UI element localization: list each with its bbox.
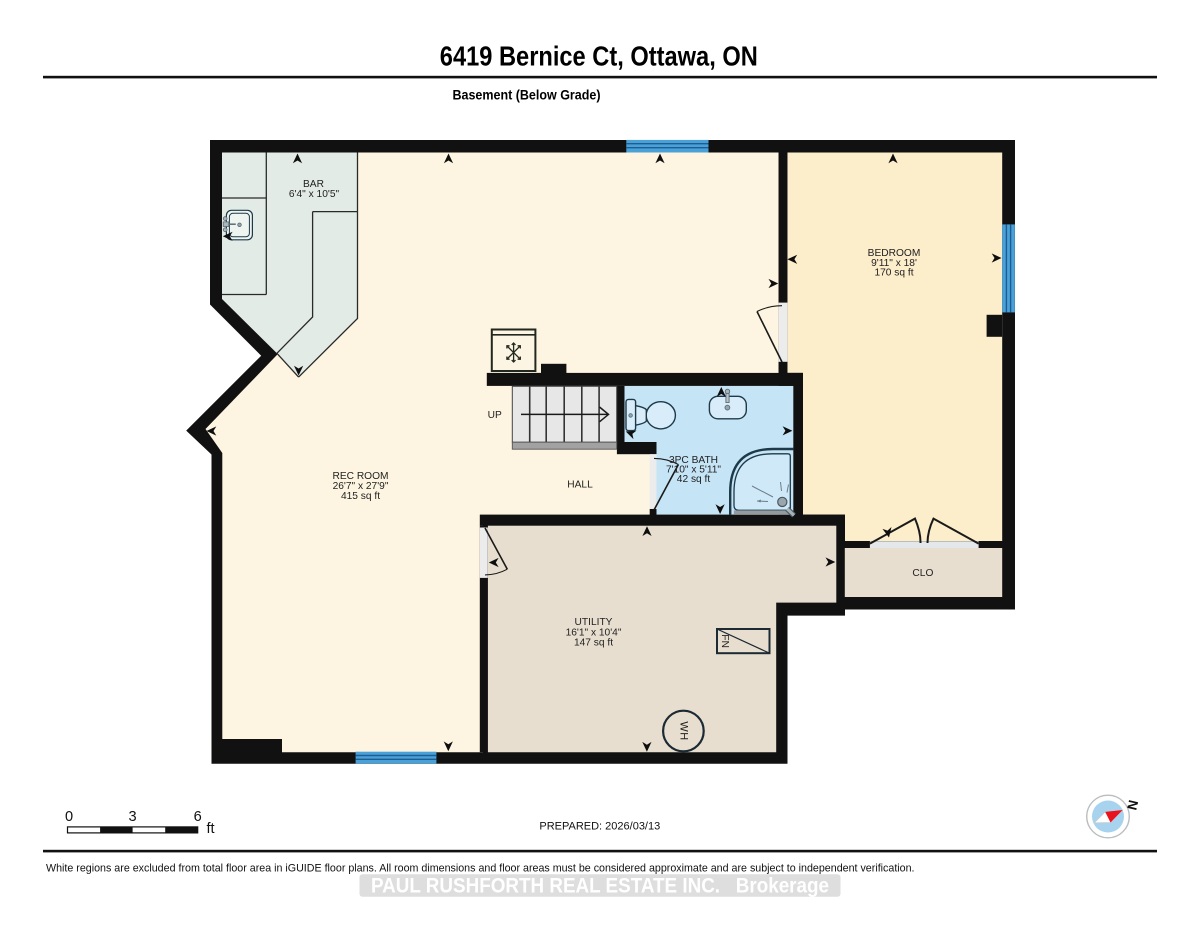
svg-text:UP: UP	[488, 410, 502, 421]
svg-text:FN: FN	[719, 634, 730, 648]
svg-text:PREPARED: 2026/03/13: PREPARED: 2026/03/13	[539, 821, 660, 833]
svg-text:170 sq ft: 170 sq ft	[874, 268, 913, 279]
svg-text:415 sq ft: 415 sq ft	[341, 491, 380, 502]
svg-text:CLO: CLO	[912, 568, 933, 579]
svg-text:White regions are excluded fro: White regions are excluded from total fl…	[46, 862, 915, 874]
svg-text:ft: ft	[207, 821, 215, 837]
svg-text:WH: WH	[677, 721, 689, 740]
svg-text:42 sq ft: 42 sq ft	[677, 474, 711, 485]
svg-text:0: 0	[65, 809, 73, 825]
svg-text:3: 3	[129, 809, 137, 825]
svg-text:6'4" x 10'5": 6'4" x 10'5"	[289, 189, 340, 200]
svg-text:HALL: HALL	[567, 480, 593, 491]
svg-text:6: 6	[194, 809, 202, 825]
svg-text:PAUL RUSHFORTH REAL ESTATE INC: PAUL RUSHFORTH REAL ESTATE INC. Brokerag…	[371, 874, 829, 897]
svg-text:147 sq ft: 147 sq ft	[574, 638, 613, 649]
svg-text:Basement (Below Grade): Basement (Below Grade)	[453, 86, 601, 102]
svg-text:6419 Bernice Ct, Ottawa, ON: 6419 Bernice Ct, Ottawa, ON	[440, 41, 758, 72]
